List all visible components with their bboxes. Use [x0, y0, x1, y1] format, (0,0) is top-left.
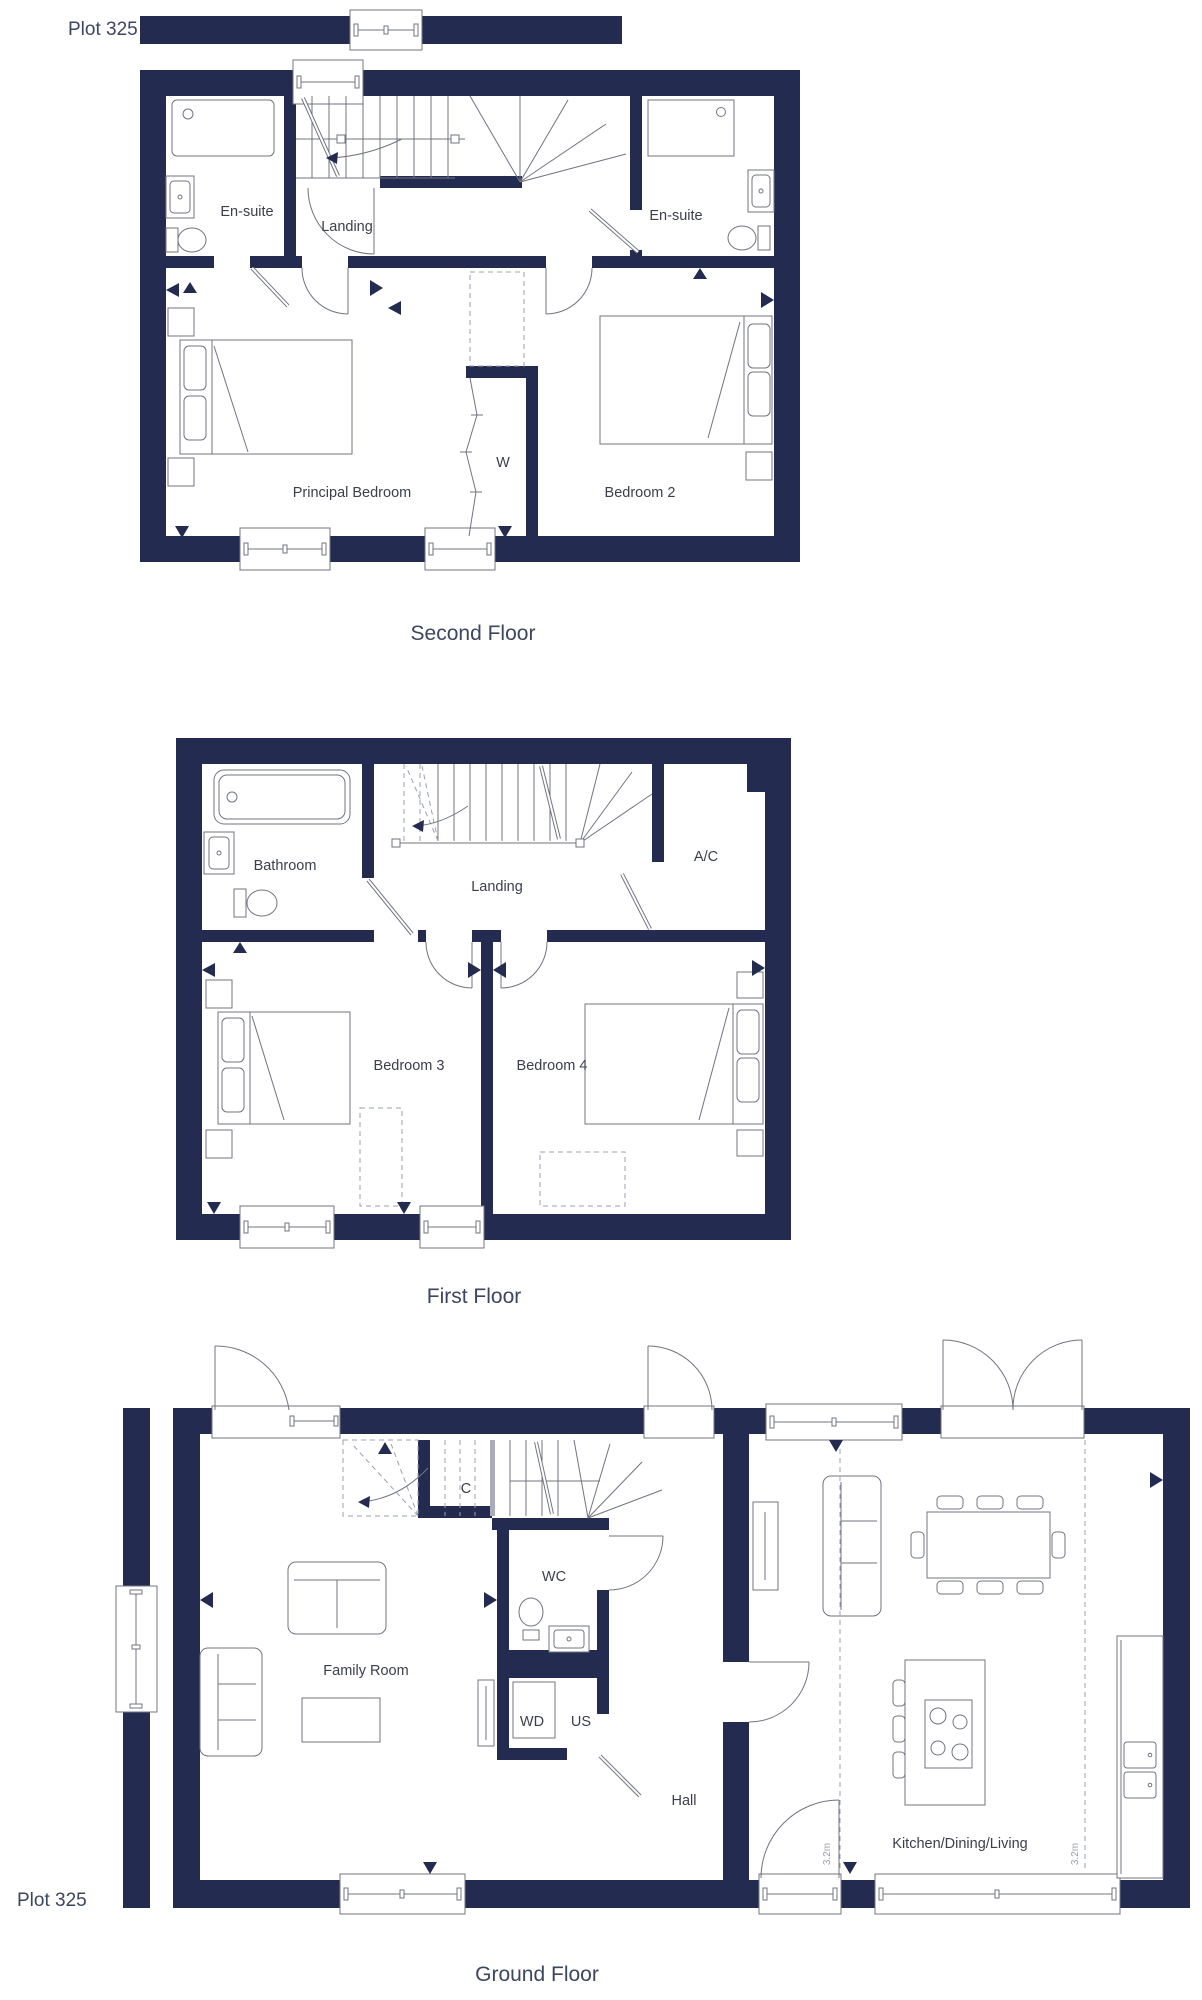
sofa [823, 1476, 881, 1616]
door [426, 942, 472, 988]
window [875, 1874, 1120, 1914]
room-label-kitchen: Kitchen/Dining/Living [892, 1836, 1027, 1852]
sofa [288, 1562, 386, 1634]
door [749, 1662, 809, 1722]
coffee-table [302, 1698, 380, 1742]
bed [206, 980, 350, 1158]
dining-table [911, 1496, 1065, 1594]
internal-walls [202, 764, 765, 1214]
room-label-bathroom: Bathroom [254, 858, 317, 874]
door [600, 1756, 640, 1796]
sink [204, 832, 234, 874]
window [350, 10, 422, 50]
sofa [200, 1648, 262, 1756]
stair-direction-arrow [412, 820, 424, 832]
dimension-label-left: 3.2m [822, 1843, 833, 1865]
room-label-cupboard: C [461, 1481, 471, 1497]
plot-label-bottom: Plot 325 [17, 1890, 87, 1911]
radiator [478, 1680, 494, 1746]
kitchen-counter [1117, 1636, 1163, 1878]
shower [648, 100, 734, 156]
ground-floor-plan: C WC Family Room WD US Hall Kitchen/Dini… [116, 1340, 1190, 1986]
room-label-landing: Landing [471, 879, 523, 895]
window [420, 1206, 484, 1248]
floorplan-page: En-suite Landing En-suite W Principal Be… [0, 0, 1202, 2000]
room-label-us: US [571, 1714, 591, 1730]
window [340, 1874, 465, 1914]
room-label-ac: A/C [694, 849, 718, 865]
door [609, 1536, 663, 1590]
toilet [166, 228, 206, 252]
floor-title-ground: Ground Floor [475, 1963, 599, 1986]
room-label-ensuite-left: En-suite [220, 204, 273, 220]
window [766, 1404, 902, 1440]
door [368, 880, 412, 934]
door [302, 268, 348, 314]
floor-title-first: First Floor [427, 1285, 522, 1308]
room-label-principal: Principal Bedroom [293, 485, 411, 501]
door [546, 268, 592, 314]
room-label-wc: WC [542, 1569, 566, 1585]
bed [600, 316, 772, 480]
window [293, 60, 363, 104]
second-floor-plan: En-suite Landing En-suite W Principal Be… [140, 10, 800, 645]
sink [549, 1626, 589, 1652]
plot-label-top: Plot 325 [68, 19, 138, 40]
room-label-ensuite-right: En-suite [649, 208, 702, 224]
staircase [296, 96, 626, 182]
kitchen-island [893, 1660, 985, 1805]
door [590, 210, 638, 252]
toilet [728, 226, 770, 250]
room-label-bedroom2: Bedroom 2 [605, 485, 676, 501]
sink [748, 170, 774, 212]
internal-walls [418, 1434, 749, 1880]
floor-title-second: Second Floor [411, 622, 536, 645]
wardrobe-front [460, 272, 524, 536]
toilet [519, 1598, 543, 1640]
outer-walls [173, 1408, 1190, 1908]
door [622, 874, 650, 929]
door [252, 268, 288, 306]
bed [168, 308, 352, 486]
room-label-family: Family Room [323, 1663, 408, 1679]
staircase [343, 1440, 662, 1518]
window [240, 1206, 334, 1248]
door [644, 1346, 714, 1438]
window [425, 528, 495, 570]
room-label-hall: Hall [672, 1793, 697, 1809]
staircase [392, 764, 652, 847]
room-label-bedroom3: Bedroom 3 [374, 1058, 445, 1074]
sink [166, 176, 194, 218]
first-floor-plan: Bathroom Landing A/C Bedroom 3 Bedroom 4… [176, 738, 791, 1308]
window [116, 1586, 157, 1712]
bath [172, 100, 274, 156]
window [240, 528, 330, 570]
stair-direction-arrow [358, 1496, 370, 1508]
room-label-wardrobe: W [496, 455, 510, 471]
media-unit [753, 1502, 778, 1590]
bed [585, 972, 763, 1156]
room-label-landing: Landing [321, 219, 373, 235]
toilet [234, 889, 277, 917]
dimension-label-right: 3.2m [1070, 1843, 1081, 1865]
floorplan-canvas: En-suite Landing En-suite W Principal Be… [0, 0, 1202, 2000]
door [501, 942, 547, 988]
entrance-door [212, 1346, 340, 1438]
french-doors [941, 1340, 1084, 1438]
room-label-wd: WD [520, 1714, 544, 1730]
bath [214, 770, 350, 824]
room-label-bedroom4: Bedroom 4 [517, 1058, 588, 1074]
